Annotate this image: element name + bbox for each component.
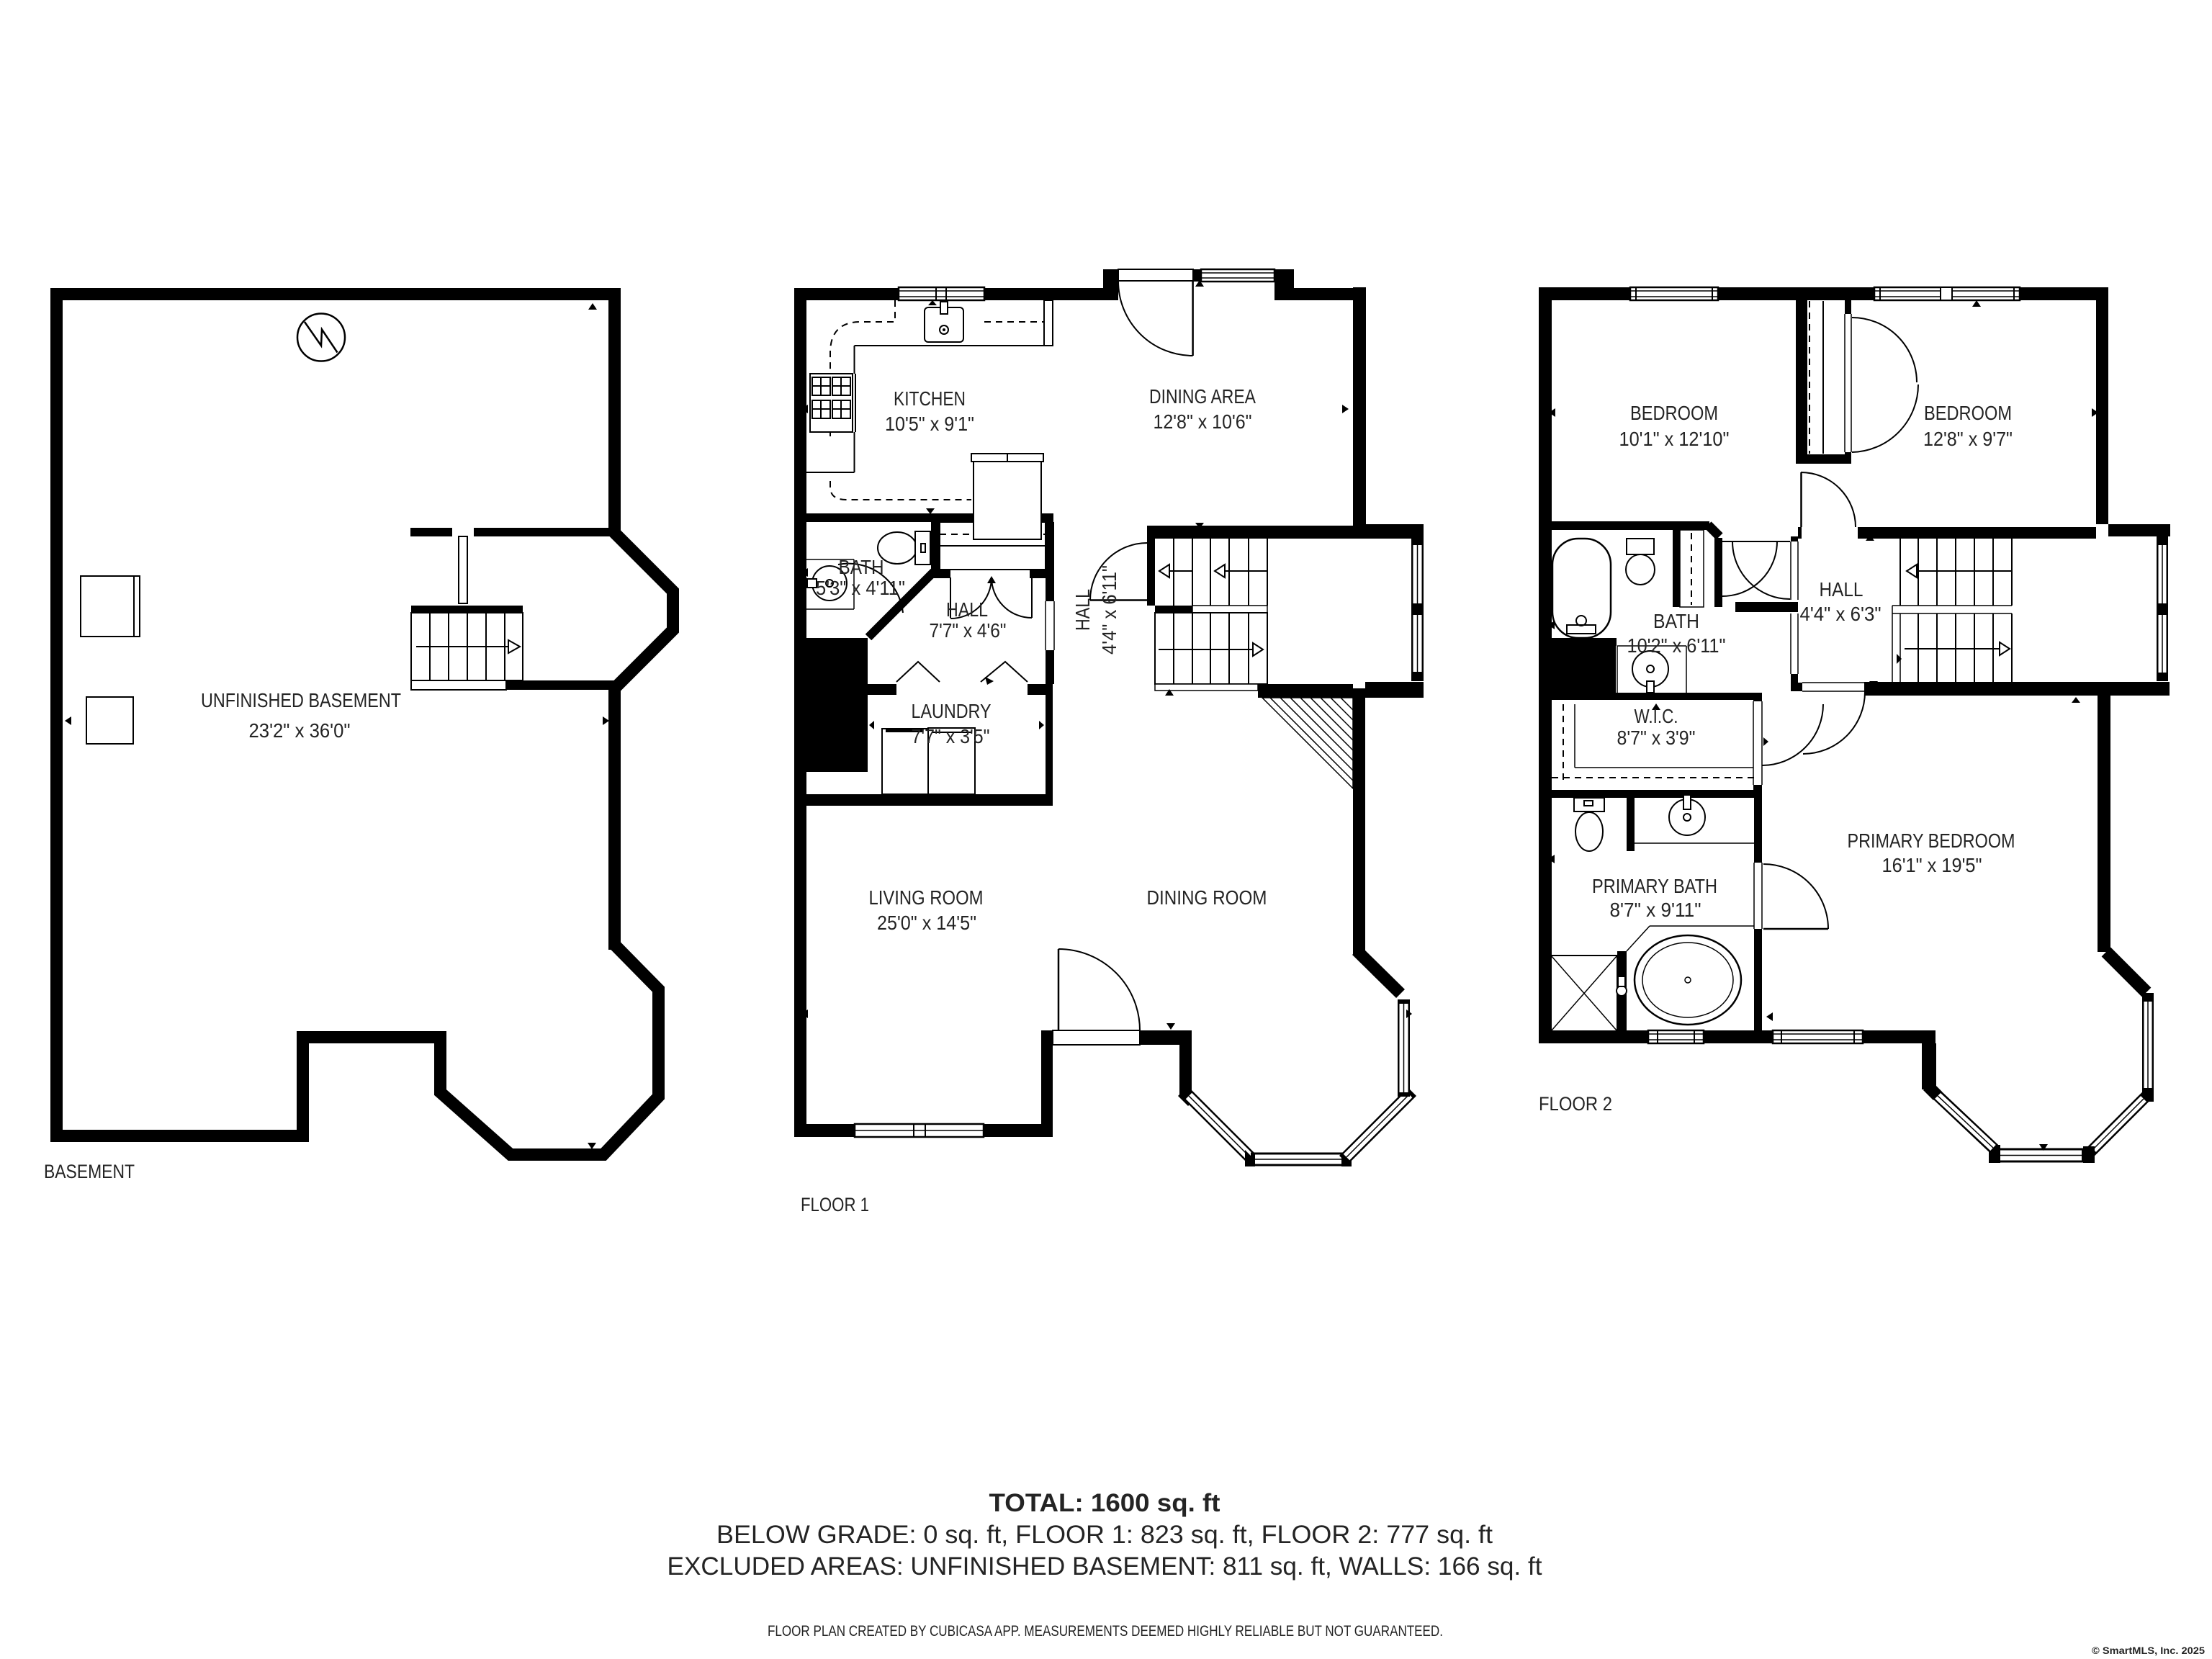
svg-text:16'1" x 19'5": 16'1" x 19'5" bbox=[1882, 854, 1982, 876]
svg-text:PRIMARY BATH: PRIMARY BATH bbox=[1592, 875, 1717, 897]
svg-text:FLOOR 2: FLOOR 2 bbox=[1539, 1093, 1612, 1115]
svg-text:DINING AREA: DINING AREA bbox=[1149, 385, 1256, 408]
svg-text:TOTAL: 1600 sq. ft: TOTAL: 1600 sq. ft bbox=[989, 1489, 1220, 1517]
svg-text:BEDROOM: BEDROOM bbox=[1630, 402, 1718, 424]
svg-text:4'4" x 6'3": 4'4" x 6'3" bbox=[1800, 603, 1881, 625]
svg-text:8'7" x 9'11": 8'7" x 9'11" bbox=[1610, 899, 1701, 921]
svg-text:BEDROOM: BEDROOM bbox=[1924, 402, 2012, 424]
svg-text:FLOOR 1: FLOOR 1 bbox=[801, 1194, 869, 1215]
svg-text:UNFINISHED BASEMENT: UNFINISHED BASEMENT bbox=[201, 689, 401, 711]
svg-text:FLOOR PLAN CREATED BY CUBICASA: FLOOR PLAN CREATED BY CUBICASA APP. MEAS… bbox=[768, 1623, 1443, 1640]
svg-text:25'0" x 14'5": 25'0" x 14'5" bbox=[877, 912, 976, 934]
svg-text:W.I.C.: W.I.C. bbox=[1635, 705, 1678, 727]
svg-text:BASEMENT: BASEMENT bbox=[44, 1161, 135, 1182]
svg-text:12'8" x 10'6": 12'8" x 10'6" bbox=[1154, 410, 1252, 433]
svg-text:HALL: HALL bbox=[946, 598, 988, 621]
svg-text:LIVING ROOM: LIVING ROOM bbox=[869, 886, 984, 909]
svg-text:12'8" x 9'7": 12'8" x 9'7" bbox=[1923, 428, 2013, 450]
svg-text:7'7" x 3'5": 7'7" x 3'5" bbox=[912, 725, 990, 747]
svg-text:10'1" x 12'10": 10'1" x 12'10" bbox=[1619, 428, 1730, 450]
svg-text:HALL: HALL bbox=[1071, 589, 1094, 631]
svg-text:BELOW GRADE: 0 sq. ft, FLOOR 1: BELOW GRADE: 0 sq. ft, FLOOR 1: 823 sq. … bbox=[716, 1521, 1493, 1549]
svg-text:4'4" x 6'11": 4'4" x 6'11" bbox=[1098, 565, 1120, 655]
svg-text:BATH: BATH bbox=[839, 556, 884, 578]
svg-text:23'2" x 36'0": 23'2" x 36'0" bbox=[249, 719, 351, 742]
svg-text:HALL: HALL bbox=[1820, 578, 1863, 601]
svg-text:© SmartMLS, Inc. 2025: © SmartMLS, Inc. 2025 bbox=[2092, 1645, 2205, 1656]
svg-text:DINING ROOM: DINING ROOM bbox=[1147, 886, 1267, 909]
svg-text:LAUNDRY: LAUNDRY bbox=[912, 700, 992, 722]
svg-text:KITCHEN: KITCHEN bbox=[894, 387, 966, 410]
svg-text:10'5" x 9'1": 10'5" x 9'1" bbox=[885, 413, 974, 435]
svg-text:BATH: BATH bbox=[1653, 610, 1699, 632]
svg-text:5'3" x 4'11": 5'3" x 4'11" bbox=[816, 577, 905, 599]
svg-text:7'7" x 4'6": 7'7" x 4'6" bbox=[930, 619, 1007, 642]
svg-text:8'7" x 3'9": 8'7" x 3'9" bbox=[1617, 727, 1696, 749]
svg-text:10'2" x 6'11": 10'2" x 6'11" bbox=[1627, 634, 1726, 657]
svg-text:PRIMARY BEDROOM: PRIMARY BEDROOM bbox=[1848, 829, 2015, 852]
svg-text:EXCLUDED AREAS: UNFINISHED BAS: EXCLUDED AREAS: UNFINISHED BASEMENT: 811… bbox=[667, 1552, 1542, 1581]
